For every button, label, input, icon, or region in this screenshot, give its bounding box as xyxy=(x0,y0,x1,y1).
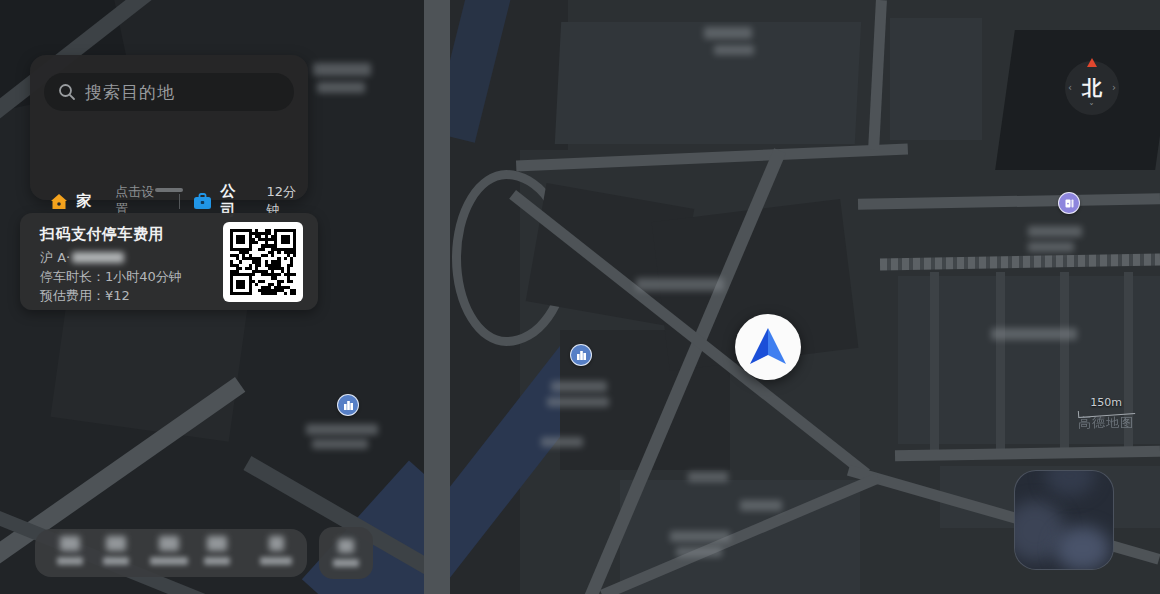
briefcase-icon xyxy=(193,193,212,210)
blurred-toolbar-icon xyxy=(106,536,126,551)
current-location-marker[interactable] xyxy=(735,314,801,380)
compass-tick-east: › xyxy=(1112,83,1116,93)
blurred-toolbar-icon xyxy=(338,539,354,553)
search-icon xyxy=(58,83,76,101)
map-road-vertical xyxy=(424,0,450,594)
toolbar-item-1[interactable] xyxy=(53,536,87,570)
gate-icon xyxy=(1064,198,1075,209)
blurred-map-label xyxy=(541,437,583,447)
blurred-minimap-content xyxy=(1055,526,1110,570)
compass-tick-south: ˇ xyxy=(1089,104,1094,114)
blurred-map-label xyxy=(547,397,609,407)
compass-tick-west: ‹ xyxy=(1068,83,1072,93)
amap-watermark: 高德地图 xyxy=(1068,414,1144,432)
map-road xyxy=(858,193,1160,209)
search-panel: 搜索目的地 家 点击设置 xyxy=(30,55,308,200)
blurred-map-label xyxy=(551,381,607,392)
toolbar-item-4[interactable] xyxy=(200,536,234,570)
map-road xyxy=(516,143,908,171)
blurred-map-label xyxy=(317,82,365,93)
divider xyxy=(179,194,180,209)
search-placeholder: 搜索目的地 xyxy=(85,81,175,104)
blurred-map-label xyxy=(1028,226,1082,237)
blurred-toolbar-label xyxy=(103,557,129,565)
compass-north-label: 北 xyxy=(1082,75,1102,102)
search-input[interactable]: 搜索目的地 xyxy=(44,73,294,111)
blurred-toolbar-label xyxy=(260,557,292,565)
map-road xyxy=(930,272,939,450)
toolbar-side-button[interactable] xyxy=(319,527,373,579)
map-scale: 150m xyxy=(1072,396,1140,416)
home-icon xyxy=(50,193,68,210)
minimap-preview[interactable] xyxy=(1014,470,1114,570)
qr-code-pattern xyxy=(230,229,297,296)
blurred-map-label xyxy=(670,531,730,542)
toolbar-item-5[interactable] xyxy=(259,536,293,570)
blurred-toolbar-label xyxy=(57,557,83,565)
toolbar-item-3[interactable] xyxy=(152,536,186,570)
north-needle-icon xyxy=(1087,58,1097,67)
blurred-toolbar-icon xyxy=(269,536,284,551)
navigation-arrow-icon xyxy=(744,323,792,371)
blurred-plate-number xyxy=(72,252,124,263)
map-railway xyxy=(880,254,1160,271)
blurred-map-label xyxy=(636,278,724,291)
blurred-toolbar-icon xyxy=(159,536,179,551)
blurred-map-label xyxy=(740,500,782,511)
blurred-map-label xyxy=(312,439,368,449)
qr-code xyxy=(223,222,303,302)
blurred-map-label xyxy=(688,472,728,482)
bottom-toolbar xyxy=(35,529,307,577)
blurred-toolbar-label xyxy=(204,557,230,565)
map-road xyxy=(996,272,1005,450)
blurred-toolbar-icon xyxy=(60,536,80,551)
plate-line: 沪 A· xyxy=(40,249,124,267)
poi-marker-gate[interactable] xyxy=(1058,192,1080,214)
poi-marker-building[interactable] xyxy=(570,344,592,366)
navigation-screen: 搜索目的地 家 点击设置 xyxy=(0,0,1160,594)
building-icon xyxy=(343,400,354,411)
parking-card-title: 扫码支付停车费用 xyxy=(40,225,164,244)
map-road xyxy=(868,0,887,150)
blurred-toolbar-label xyxy=(333,559,359,567)
panel-drag-handle[interactable] xyxy=(155,188,183,192)
map-block xyxy=(555,22,861,144)
blurred-map-label xyxy=(313,63,371,76)
blurred-toolbar-label xyxy=(150,557,188,565)
building-icon xyxy=(576,350,587,361)
blurred-map-label xyxy=(306,424,378,435)
home-shortcut[interactable]: 家 xyxy=(76,192,92,211)
map-block xyxy=(890,18,982,140)
blurred-map-label xyxy=(714,45,754,55)
blurred-map-label xyxy=(704,27,752,39)
blurred-map-label xyxy=(991,328,1077,340)
estimated-fee: 预估费用：¥12 xyxy=(40,287,130,305)
blurred-toolbar-icon xyxy=(207,536,227,551)
poi-marker-building[interactable] xyxy=(337,394,359,416)
blurred-map-label xyxy=(676,547,722,557)
parking-payment-card[interactable]: 扫码支付停车费用 沪 A· 停车时长：1小时40分钟 预估费用：¥12 xyxy=(20,213,318,310)
blurred-minimap-content xyxy=(1045,470,1095,496)
parking-duration: 停车时长：1小时40分钟 xyxy=(40,268,182,286)
toolbar-item-2[interactable] xyxy=(99,536,133,570)
blurred-map-label xyxy=(1028,242,1074,252)
compass[interactable]: 北 ‹ › ˇ xyxy=(1065,61,1119,115)
